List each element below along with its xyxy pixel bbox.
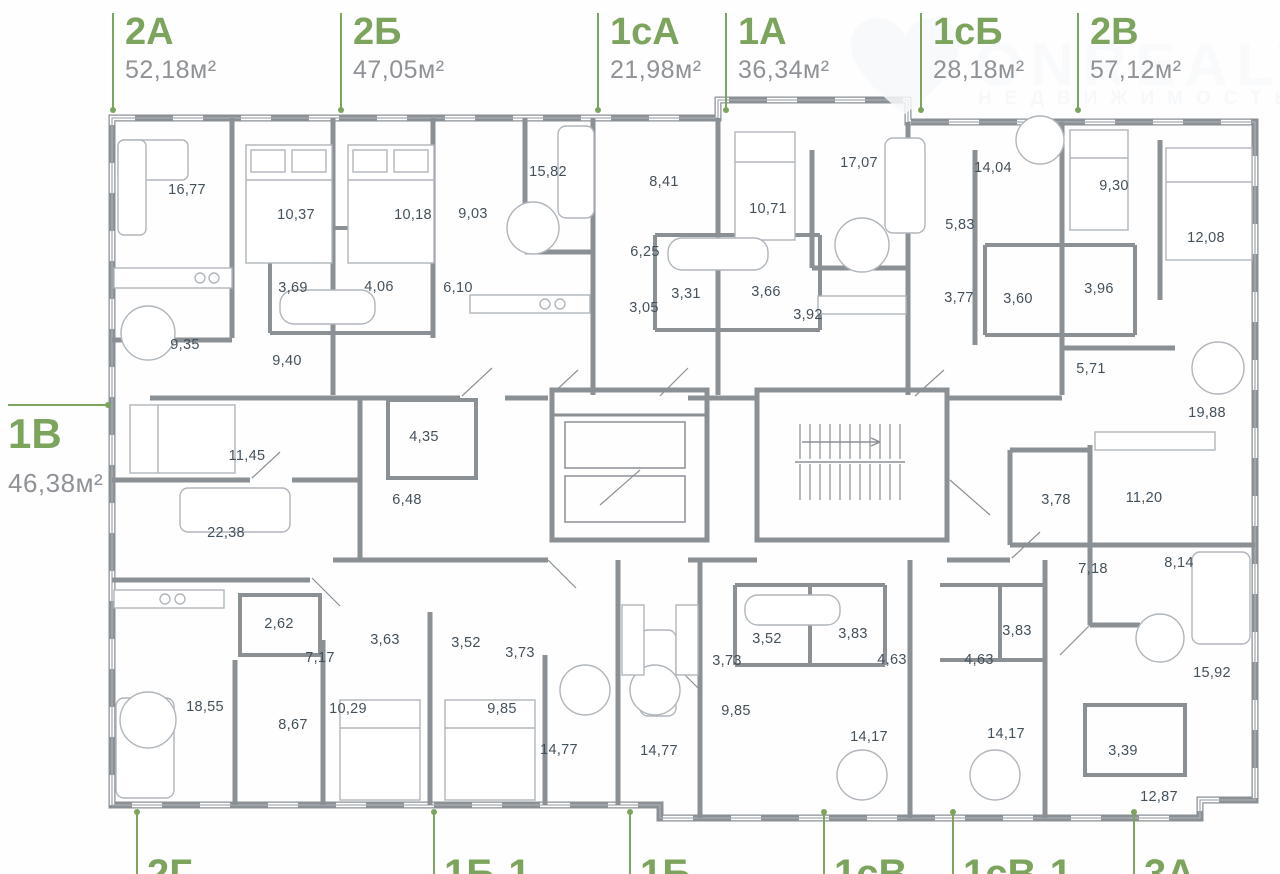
apartment-code: 1А xyxy=(738,13,830,53)
apartment-area: 36,34м² xyxy=(738,56,830,85)
room-area-value: 16,77 xyxy=(168,182,206,198)
room-area-value: 4,06 xyxy=(364,279,393,295)
room-area-value: 3,78 xyxy=(1041,492,1070,508)
room-area-value: 9,85 xyxy=(721,703,750,719)
sofa xyxy=(1192,552,1250,644)
apartment-area: 52,18м² xyxy=(125,56,217,85)
dining-table xyxy=(121,306,175,360)
dining-table xyxy=(970,750,1020,800)
room-area-value: 9,35 xyxy=(170,337,199,353)
room-area-value: 12,87 xyxy=(1140,789,1178,805)
apartment-label-2Б: 2Б47,05м² xyxy=(340,13,445,110)
label-dot xyxy=(105,402,111,408)
apartment-code: 2Г xyxy=(147,853,192,874)
label-dot xyxy=(338,107,344,113)
label-dot xyxy=(110,107,116,113)
apartment-area: 47,05м² xyxy=(353,56,445,85)
room-area-value: 10,18 xyxy=(394,207,432,223)
bed xyxy=(735,132,795,240)
apartment-label-1сБ: 1сБ28,18м² xyxy=(920,13,1025,110)
room-area-value: 10,29 xyxy=(329,701,367,717)
room-area-value: 12,08 xyxy=(1187,230,1225,246)
dining-table xyxy=(837,750,887,800)
room-area-value: 8,67 xyxy=(278,717,307,733)
apartment-code: 2В xyxy=(1090,13,1182,53)
kitchen-counter xyxy=(114,590,224,608)
room-area-value: 9,03 xyxy=(458,206,487,222)
room-area-value: 9,30 xyxy=(1099,178,1128,194)
room-area-value: 4,63 xyxy=(877,652,906,668)
room-area-value: 3,60 xyxy=(1003,291,1032,307)
sofa xyxy=(885,138,925,233)
room-area-value: 19,88 xyxy=(1188,405,1226,421)
dining-table xyxy=(1192,342,1244,394)
apartment-label-3А: 3А xyxy=(1133,812,1195,874)
room-area-value: 10,37 xyxy=(277,207,315,223)
room-area-value: 14,77 xyxy=(640,743,678,759)
room-area-value: 17,07 xyxy=(840,155,878,171)
apartment-area: 46,38м² xyxy=(8,468,108,499)
room-area-value: 15,82 xyxy=(529,164,567,180)
room-area-value: 3,69 xyxy=(278,280,307,296)
floorplan-page: ONREALT НЕДВИЖИМОСТЬ 1В 46,38м² 2А52,18м… xyxy=(0,0,1280,874)
apartment-label-1В: 1В 46,38м² xyxy=(8,404,108,499)
apartment-label-1Б: 1Б xyxy=(629,812,691,874)
room-area-value: 14,04 xyxy=(974,160,1012,176)
room-area-value: 3,83 xyxy=(1002,623,1031,639)
stair-direction-arrow xyxy=(802,438,880,446)
room-area-value: 5,71 xyxy=(1076,361,1105,377)
apartment-label-1сВ-1: 1сВ-1 xyxy=(952,812,1072,874)
room-area-value: 6,25 xyxy=(630,244,659,260)
kitchen-counter xyxy=(818,296,906,314)
room-area-value: 3,66 xyxy=(751,284,780,300)
kitchen-counter xyxy=(1095,432,1215,450)
room-area-value: 14,77 xyxy=(540,742,578,758)
apartment-code: 1сБ xyxy=(933,13,1025,53)
apartment-label-2А: 2А52,18м² xyxy=(112,13,217,110)
room-area-value: 11,20 xyxy=(1126,490,1163,506)
bed xyxy=(246,145,332,263)
room-area-value: 2,62 xyxy=(264,616,293,632)
apartment-label-1сВ: 1сВ xyxy=(823,812,907,874)
apartment-label-2Г: 2Г xyxy=(136,812,192,874)
kitchen-counter xyxy=(470,295,590,313)
kitchen-counter xyxy=(114,268,232,288)
apartment-code: 1Б-1 xyxy=(444,853,531,874)
label-dot xyxy=(1075,107,1081,113)
room-area-value: 11,45 xyxy=(229,448,266,464)
room-area-value: 3,63 xyxy=(370,632,399,648)
apartment-area: 57,12м² xyxy=(1090,56,1182,85)
apartment-label-1А: 1А36,34м² xyxy=(725,13,830,110)
room-area-value: 9,40 xyxy=(272,353,301,369)
apartment-label-1Б-1: 1Б-1 xyxy=(433,812,531,874)
bathtub xyxy=(745,595,840,625)
dining-table xyxy=(835,218,889,272)
room-area-value: 3,77 xyxy=(944,290,973,306)
room-area-value: 3,39 xyxy=(1108,743,1137,759)
room-area-value: 22,38 xyxy=(207,525,245,541)
dining-table xyxy=(507,202,559,254)
apartment-label-2В: 2В57,12м² xyxy=(1077,13,1182,110)
room-area-value: 3,73 xyxy=(505,645,534,661)
label-dot xyxy=(134,809,140,815)
label-dot xyxy=(1131,809,1137,815)
room-area-value: 14,17 xyxy=(850,729,888,745)
room-area-value: 6,10 xyxy=(443,280,472,296)
room-area-value: 18,55 xyxy=(186,699,224,715)
room-area-value: 14,17 xyxy=(987,726,1025,742)
room-area-value: 3,83 xyxy=(838,626,867,642)
label-dot xyxy=(918,107,924,113)
room-area-value: 4,35 xyxy=(409,429,438,445)
apartment-code: 2Б xyxy=(353,13,445,53)
elevator-shafts xyxy=(552,390,707,540)
room-area-value: 3,05 xyxy=(629,300,658,316)
room-area-value: 8,41 xyxy=(649,174,678,190)
label-dot xyxy=(723,107,729,113)
room-area-value: 6,48 xyxy=(392,492,421,508)
apartment-code: 3А xyxy=(1144,853,1195,874)
room-area-value: 3,92 xyxy=(793,307,822,323)
apartment-code: 1Б xyxy=(640,853,691,874)
dining-table xyxy=(1136,614,1184,662)
room-area-value: 7,18 xyxy=(1078,561,1107,577)
dining-table xyxy=(120,692,176,748)
bathtub xyxy=(668,238,768,270)
room-area-value: 3,73 xyxy=(712,653,741,669)
bed xyxy=(130,405,235,473)
room-area-value: 4,63 xyxy=(964,652,993,668)
dining-table xyxy=(560,665,610,715)
room-area-value: 5,83 xyxy=(945,217,974,233)
room-area-value: 15,92 xyxy=(1193,665,1231,681)
apartment-code: 1сА xyxy=(610,13,702,53)
label-dot xyxy=(821,809,827,815)
room-area-value: 10,71 xyxy=(749,201,787,217)
label-dot xyxy=(627,809,633,815)
room-area-value: 3,52 xyxy=(451,635,480,651)
label-dot xyxy=(595,107,601,113)
label-dot xyxy=(431,809,437,815)
bed xyxy=(348,145,434,263)
room-area-value: 3,31 xyxy=(671,286,700,302)
label-dot xyxy=(950,809,956,815)
room-area-value: 9,85 xyxy=(487,701,516,717)
apartment-area: 21,98м² xyxy=(610,56,702,85)
apartment-code: 1В xyxy=(8,412,108,456)
sofa xyxy=(118,140,146,235)
apartment-code: 1сВ-1 xyxy=(963,853,1072,874)
room-area-value: 7,17 xyxy=(305,650,334,666)
dining-table xyxy=(1016,116,1064,164)
room-area-value: 3,96 xyxy=(1084,281,1113,297)
staircase xyxy=(757,390,947,540)
apartment-label-1сА: 1сА21,98м² xyxy=(597,13,702,110)
room-area-value: 3,52 xyxy=(752,631,781,647)
apartment-code: 1сВ xyxy=(834,853,907,874)
apartment-code: 2А xyxy=(125,13,217,53)
room-area-value: 8,14 xyxy=(1164,555,1193,571)
apartment-area: 28,18м² xyxy=(933,56,1025,85)
